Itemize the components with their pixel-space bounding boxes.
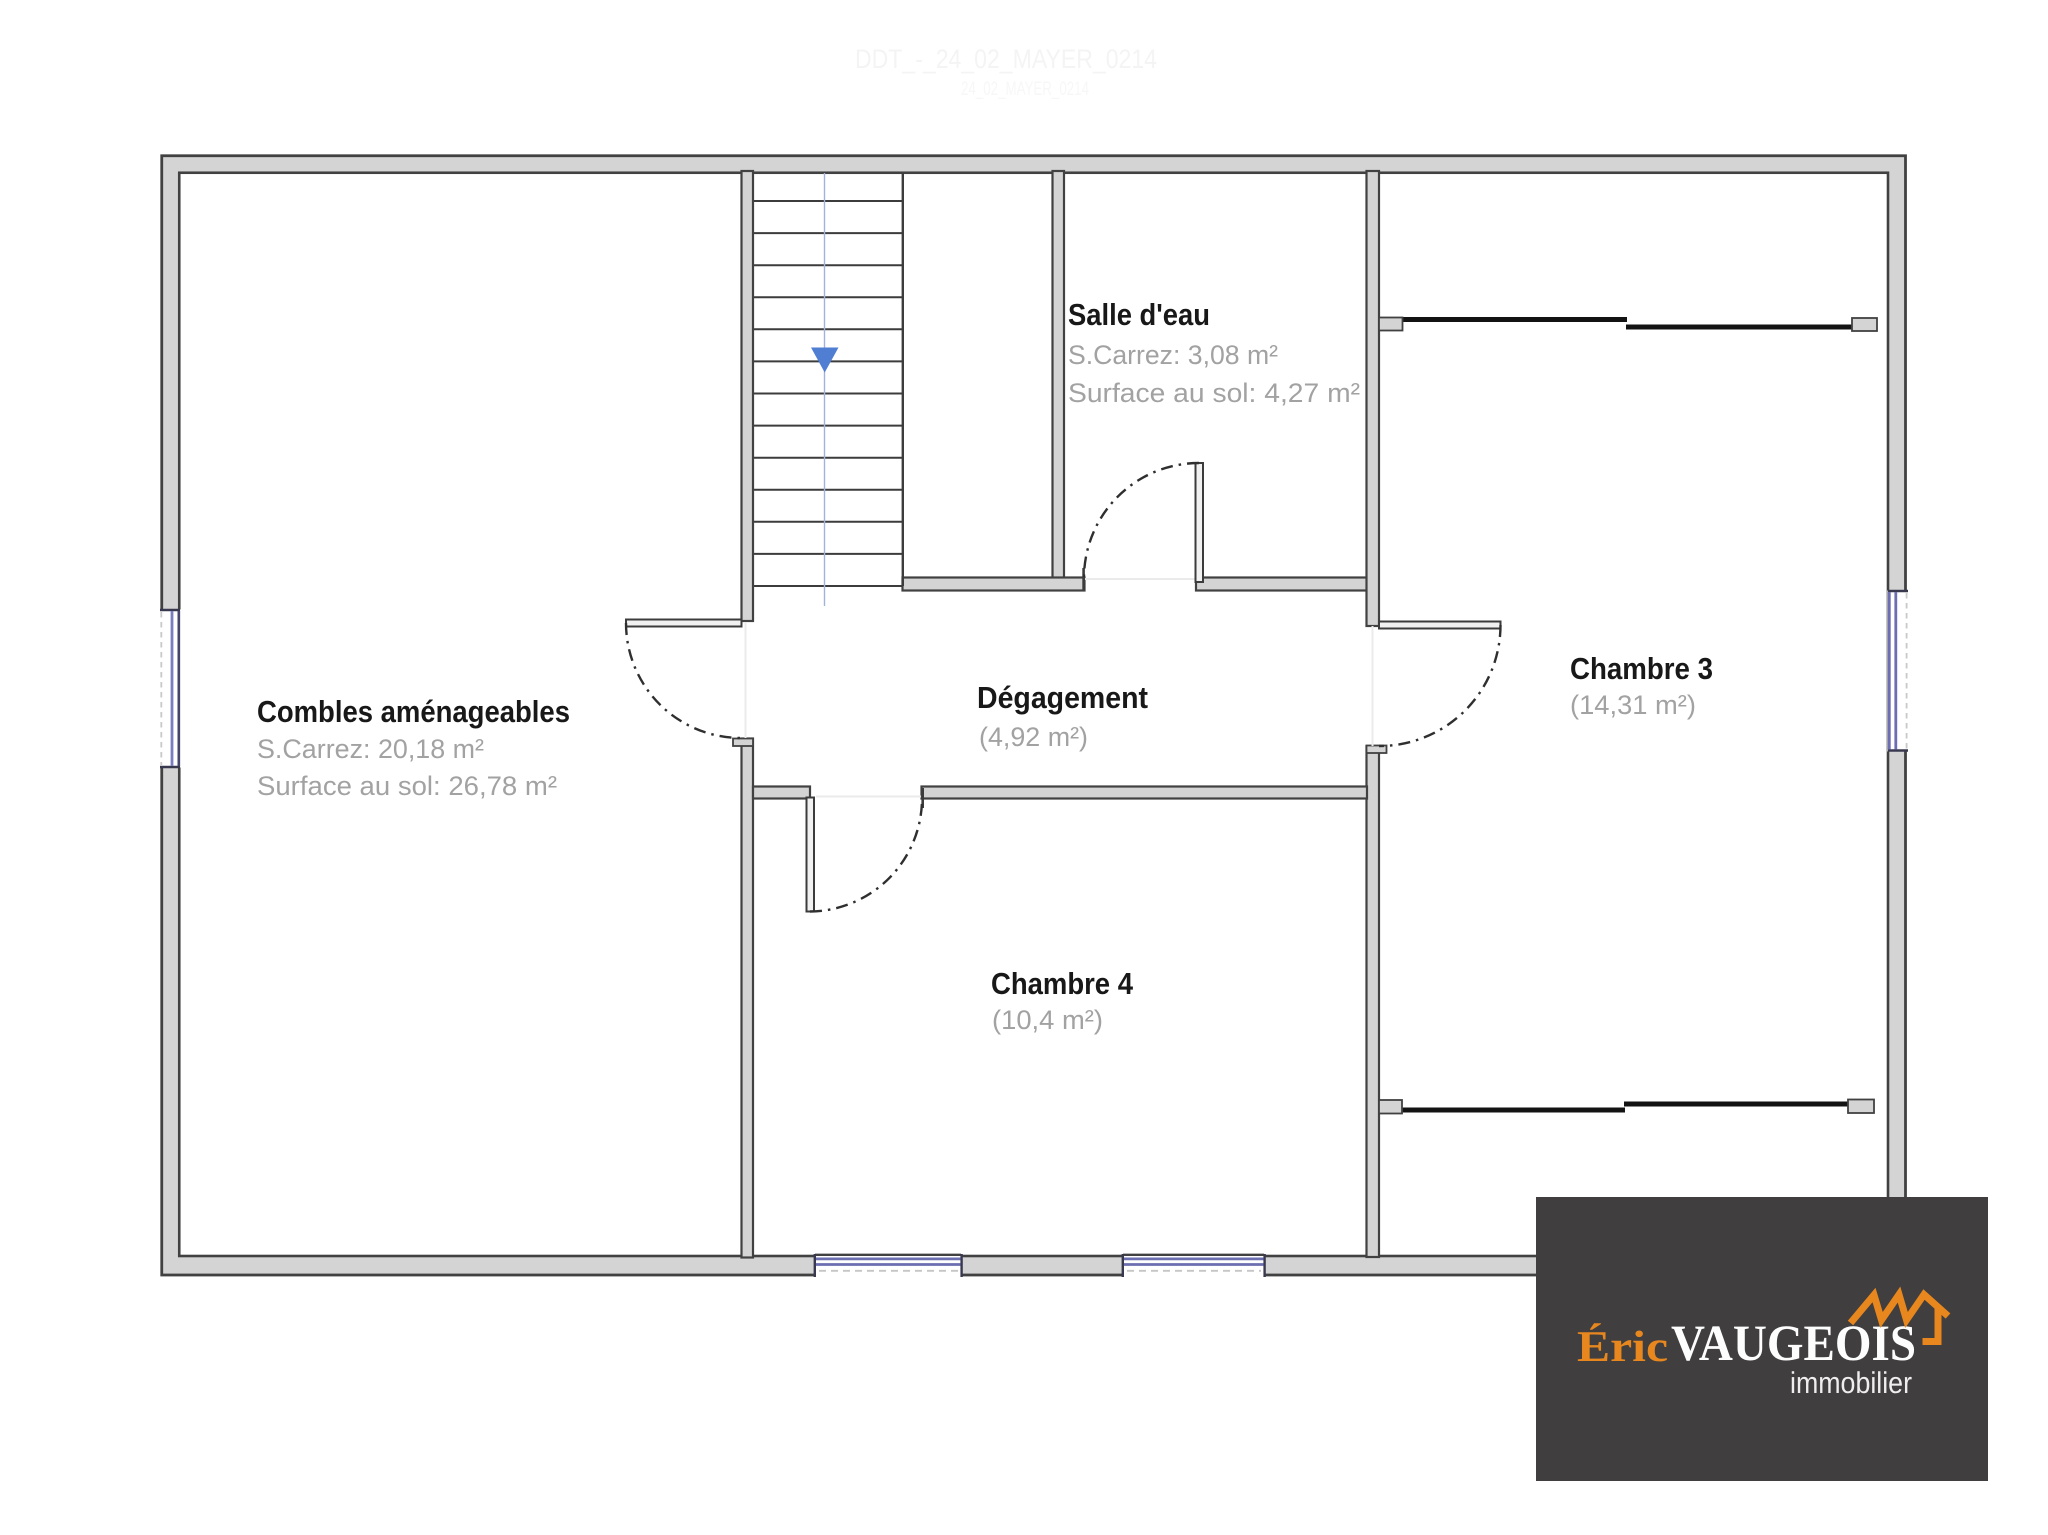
svg-text:Dégagement: Dégagement	[977, 681, 1148, 715]
svg-text:S.Carrez: 20,18 m²: S.Carrez: 20,18 m²	[257, 734, 484, 764]
svg-text:Combles aménageables: Combles aménageables	[257, 695, 570, 729]
svg-text:Salle d'eau: Salle d'eau	[1068, 298, 1210, 332]
svg-text:immobilier: immobilier	[1790, 1367, 1912, 1400]
svg-text:Surface au sol: 26,78 m²: Surface au sol: 26,78 m²	[257, 771, 557, 801]
svg-text:Chambre 3: Chambre 3	[1570, 652, 1713, 686]
svg-text:S.Carrez: 3,08 m²: S.Carrez: 3,08 m²	[1068, 340, 1278, 370]
svg-text:Surface au sol: 4,27 m²: Surface au sol: 4,27 m²	[1068, 378, 1360, 408]
svg-text:Éric: Éric	[1577, 1322, 1668, 1371]
svg-text:24_02_MAYER_0214: 24_02_MAYER_0214	[961, 79, 1089, 100]
svg-text:(10,4 m²): (10,4 m²)	[992, 1005, 1103, 1035]
svg-text:Chambre 4: Chambre 4	[991, 967, 1133, 1001]
svg-text:(4,92 m²): (4,92 m²)	[979, 722, 1088, 752]
svg-text:(14,31 m²): (14,31 m²)	[1570, 690, 1696, 720]
svg-text:DDT_-_24_02_MAYER_0214: DDT_-_24_02_MAYER_0214	[855, 44, 1157, 74]
